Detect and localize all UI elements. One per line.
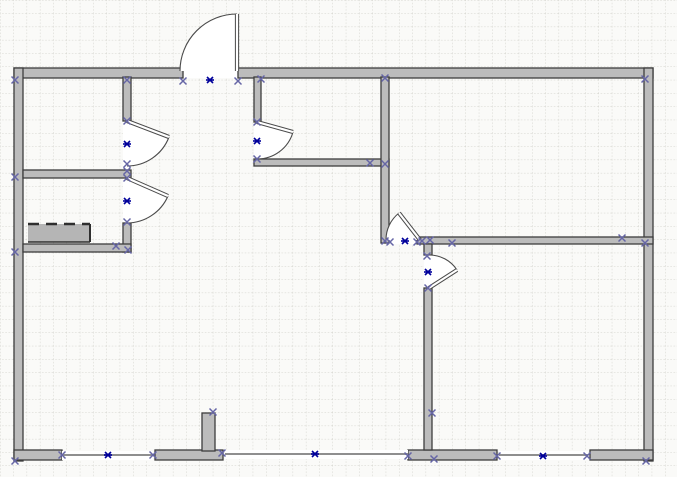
drawing-page xyxy=(0,0,677,477)
bottom-wall-seg-1[interactable] xyxy=(14,450,62,460)
hall-wall-vertical[interactable] xyxy=(254,77,261,122)
right-wall[interactable] xyxy=(644,68,653,461)
bottom-wall-stub[interactable] xyxy=(202,413,215,451)
lower-right-wall-vertical[interactable] xyxy=(424,288,432,450)
floor-plan-canvas[interactable] xyxy=(0,0,677,477)
counter-shape[interactable] xyxy=(28,224,90,242)
thin-wall-segments xyxy=(62,450,588,460)
left-room-divider[interactable] xyxy=(23,170,131,178)
top-wall-left[interactable] xyxy=(14,68,183,78)
left-wall[interactable] xyxy=(14,68,23,461)
center-wall-vertical[interactable] xyxy=(381,77,389,243)
counter-fill xyxy=(28,224,90,242)
bottom-wall-seg-3[interactable] xyxy=(408,450,497,460)
top-wall-right[interactable] xyxy=(238,68,653,78)
